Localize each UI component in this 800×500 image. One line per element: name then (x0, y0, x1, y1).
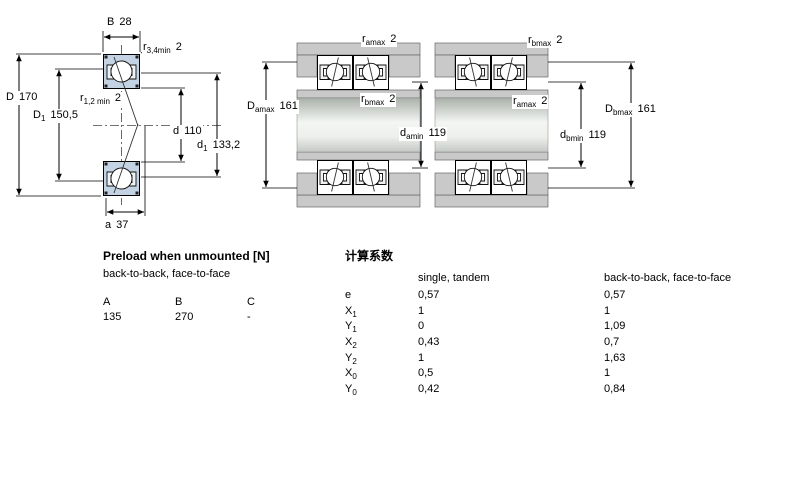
dim-label-ramax-top: ramax2 (361, 33, 397, 47)
dim-label-rbmax-top: rbmax2 (527, 34, 563, 48)
dim-label-d1: d1133,2 (196, 139, 241, 153)
factors-row-Y1: Y1 0 1,09 (345, 320, 625, 336)
preload-value-A: 135 (103, 310, 175, 324)
bearing-unit (354, 56, 389, 90)
dim-label-B: B28 (106, 16, 133, 30)
preload-col-C: C (247, 295, 319, 309)
bearing-unit (318, 161, 353, 195)
dim-label-a: a37 (104, 219, 129, 233)
right-extension-lines (548, 62, 635, 188)
dim-label-rbmax-mid: rbmax2 (360, 93, 396, 107)
dim-label-D1: D1150,5 (32, 109, 79, 123)
dim-label-D: D170 (5, 91, 38, 105)
factors-col2-header: back-to-back, face-to-face (604, 271, 731, 285)
bearing-datasheet-page: B28 r3,4min2 D170 D1150,5 r1,2 min2 d110… (0, 0, 800, 500)
shaft-body (297, 98, 420, 152)
factors-row-Y0: Y0 0,42 0,84 (345, 383, 625, 399)
dim-label-r12: r1,2 min2 (79, 92, 122, 106)
left-bearing-cross-section (16, 31, 222, 216)
bearing-unit (456, 56, 491, 90)
dim-label-d: d110 (172, 125, 203, 139)
bearing-drawings (0, 0, 800, 245)
preload-table-value-row: 135 270 - (103, 310, 319, 324)
bearing-unit (492, 161, 527, 195)
factors-row-e: e 0,57 0,57 (345, 289, 625, 305)
dim-label-Dbmax: Dbmax161 (604, 103, 657, 117)
dim-label-Damax: Damax161 (246, 100, 299, 114)
preload-value-B: 270 (175, 310, 247, 324)
right-mounted-pair-diagram (435, 43, 635, 207)
bearing-section-bottom (104, 162, 140, 196)
right-dimension-lines (581, 63, 631, 187)
dim-label-r34: r3,4min2 (142, 41, 183, 55)
bearing-unit (318, 56, 353, 90)
bearing-unit (456, 161, 491, 195)
factors-row-X0: X0 0,5 1 (345, 367, 625, 383)
factors-table-rows: e 0,57 0,57 X1 1 1 Y1 0 1,09 X2 0,43 0,7… (345, 289, 625, 399)
factors-row-X2: X2 0,43 0,7 (345, 336, 625, 352)
dim-label-damin: damin119 (399, 127, 447, 141)
preload-col-B: B (175, 295, 247, 309)
dim-label-dbmin: dbmin119 (559, 129, 607, 143)
factors-col1-header: single, tandem (418, 271, 490, 285)
bearing-section-top (104, 55, 140, 89)
factors-row-X1: X1 1 1 (345, 305, 625, 321)
dim-label-ramax-mid: ramax2 (512, 95, 548, 109)
middle-mounted-pair-diagram (262, 43, 428, 207)
factors-table-title: 计算系数 (345, 250, 393, 263)
preload-value-C: - (247, 310, 319, 324)
preload-table-subtitle: back-to-back, face-to-face (103, 267, 230, 281)
preload-col-A: A (103, 295, 175, 309)
preload-table-header-row: A B C (103, 295, 319, 309)
factors-row-Y2: Y2 1 1,63 (345, 352, 625, 368)
preload-table-title: Preload when unmounted [N] (103, 250, 270, 263)
bearing-unit (354, 161, 389, 195)
bearing-unit (492, 56, 527, 90)
